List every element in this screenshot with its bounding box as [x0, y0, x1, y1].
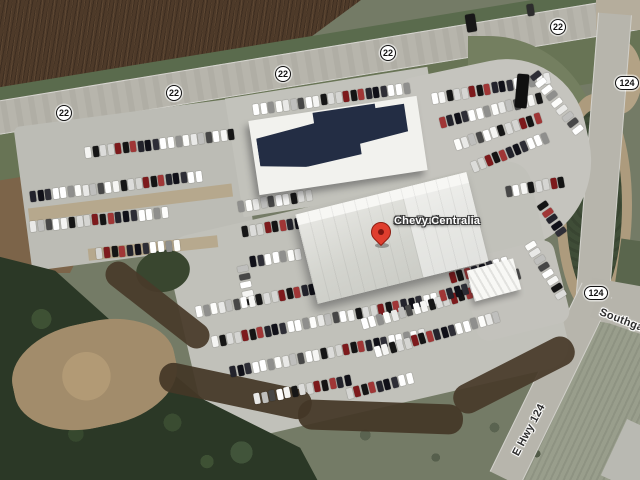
route-22-shield: 22	[166, 85, 182, 101]
route-22-shield: 22	[380, 45, 396, 61]
route-22-shield: 22	[56, 105, 72, 121]
route-22-shield: 22	[550, 19, 566, 35]
satellite-map[interactable]: E Hwy 124 Southgate 2222222222124124 Jim…	[0, 0, 640, 480]
road-label-southgate: Southgate	[598, 306, 640, 349]
route-124-shield: 124	[584, 286, 608, 300]
route-22-shield: 22	[275, 66, 291, 82]
place-label-line2: Chevy Centralia	[394, 215, 480, 228]
label-layer: E Hwy 124 Southgate 2222222222124124	[0, 0, 640, 480]
road-label-e-hwy-124: E Hwy 124	[505, 392, 553, 468]
route-124-shield: 124	[615, 76, 639, 90]
